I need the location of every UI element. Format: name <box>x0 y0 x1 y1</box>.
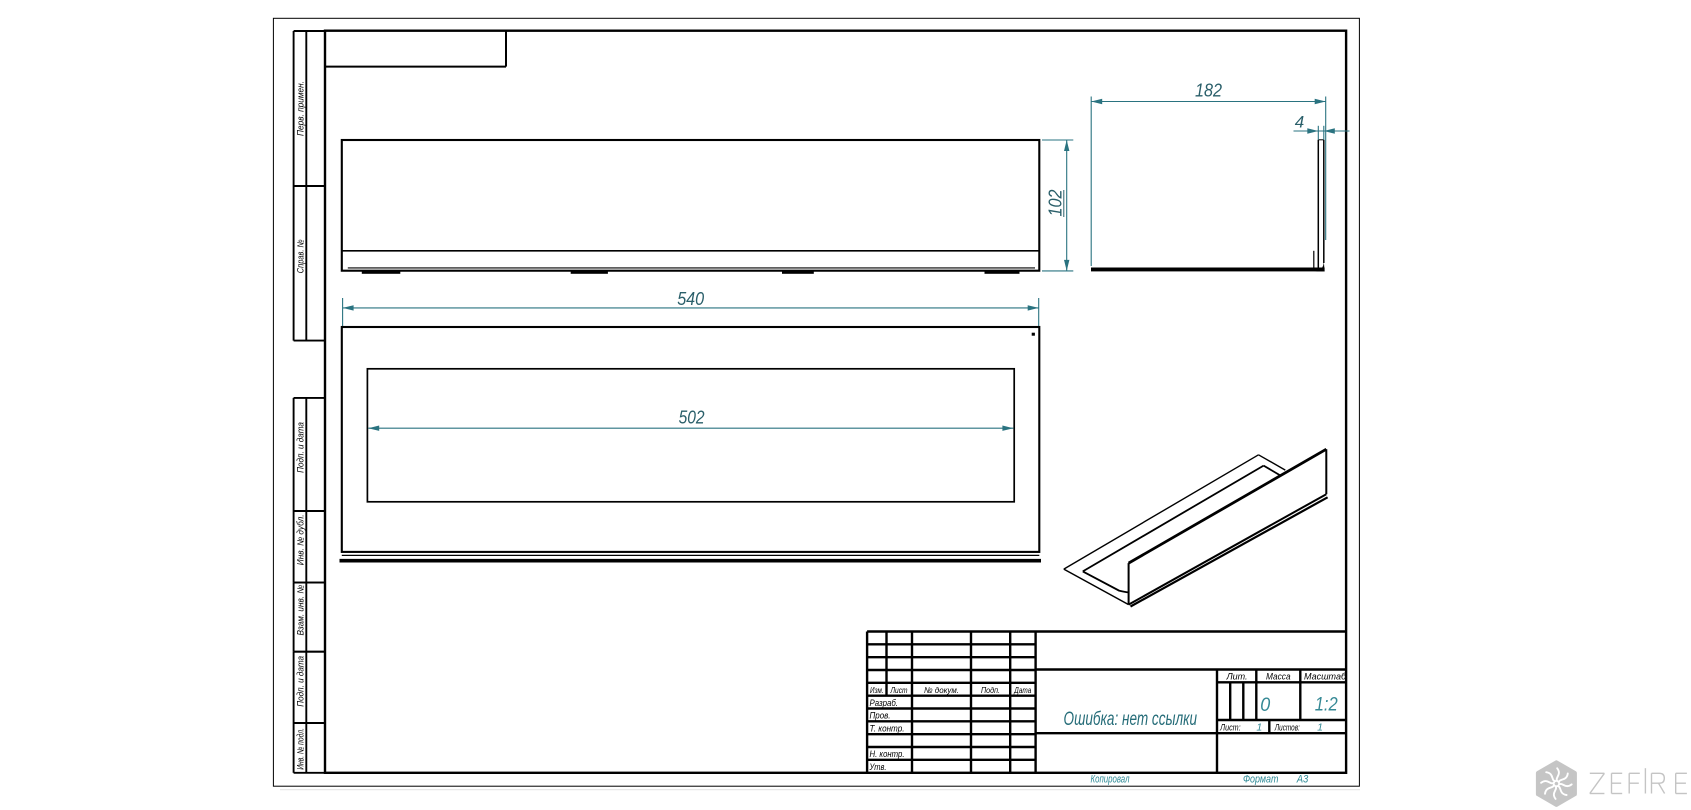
svg-text:0: 0 <box>1260 695 1270 716</box>
svg-text:Перв. примен.: Перв. примен. <box>296 81 306 136</box>
svg-text:Утв.: Утв. <box>869 762 887 773</box>
svg-text:4: 4 <box>1295 113 1304 132</box>
svg-text:182: 182 <box>1195 80 1222 100</box>
svg-text:1:2: 1:2 <box>1315 694 1338 716</box>
svg-text:102: 102 <box>1046 190 1066 217</box>
svg-text:№ докум.: № докум. <box>924 685 959 695</box>
svg-text:Формат: Формат <box>1243 773 1279 785</box>
svg-text:Дата: Дата <box>1014 685 1032 695</box>
svg-text:Ошибка: нет ссылки: Ошибка: нет ссылки <box>1064 708 1198 730</box>
svg-text:502: 502 <box>679 408 705 428</box>
svg-text:Подп. и дата: Подп. и дата <box>296 656 306 707</box>
svg-text:Лист:: Лист: <box>1219 723 1241 734</box>
svg-text:1: 1 <box>1256 722 1262 734</box>
svg-text:Масса: Масса <box>1266 672 1291 682</box>
svg-text:А3: А3 <box>1296 773 1309 785</box>
svg-text:Справ. №: Справ. № <box>296 239 306 273</box>
svg-text:Лит.: Лит. <box>1225 672 1247 682</box>
svg-text:Взам. инв. №: Взам. инв. № <box>296 585 306 636</box>
svg-text:Копировал: Копировал <box>1091 773 1130 785</box>
svg-text:Листов:: Листов: <box>1274 723 1300 734</box>
svg-text:Пров.: Пров. <box>870 711 891 722</box>
svg-text:540: 540 <box>677 289 704 309</box>
svg-text:Разраб.: Разраб. <box>870 698 899 709</box>
svg-text:1: 1 <box>1317 722 1323 734</box>
svg-text:Т. контр.: Т. контр. <box>870 724 905 735</box>
svg-text:Подп. и дата: Подп. и дата <box>296 422 306 473</box>
svg-text:Инв. № подл.: Инв. № подл. <box>296 728 306 770</box>
svg-text:Изм.: Изм. <box>870 685 884 695</box>
svg-text:Лист: Лист <box>890 685 908 695</box>
svg-text:Н. контр.: Н. контр. <box>870 749 905 760</box>
svg-text:Подп.: Подп. <box>981 685 1000 695</box>
svg-text:Инв. № дубл.: Инв. № дубл. <box>296 514 306 565</box>
svg-text:Масштаб: Масштаб <box>1304 672 1347 682</box>
